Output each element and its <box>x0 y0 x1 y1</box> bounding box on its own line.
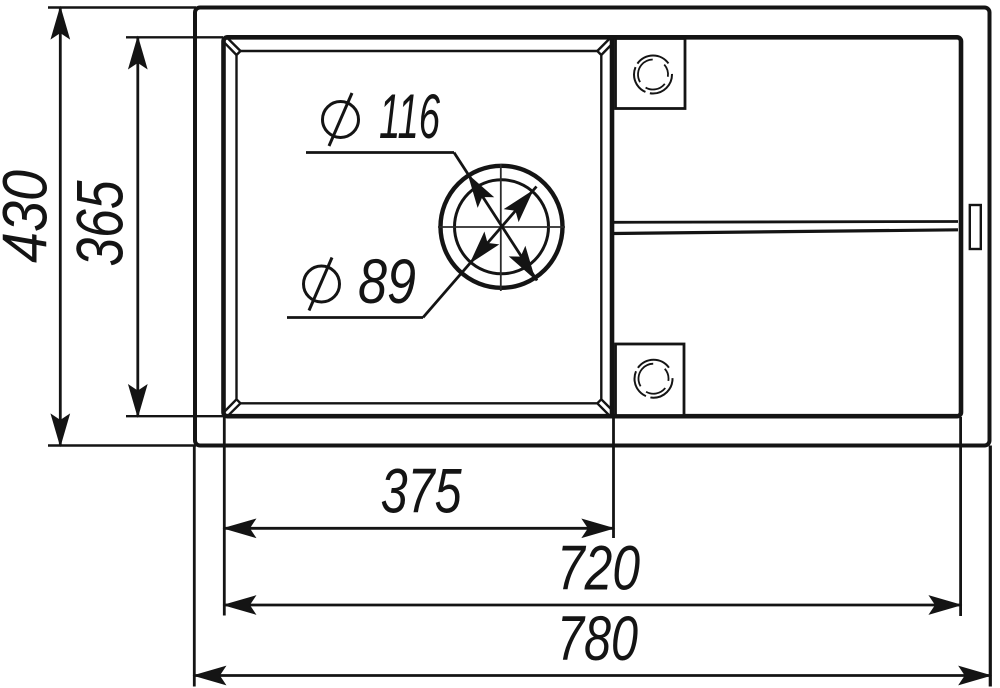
svg-text:89: 89 <box>358 247 416 317</box>
svg-text:720: 720 <box>557 534 640 604</box>
svg-text:430: 430 <box>0 170 61 263</box>
svg-text:116: 116 <box>379 82 441 152</box>
svg-text:365: 365 <box>63 180 137 266</box>
svg-text:780: 780 <box>557 604 638 674</box>
svg-text:375: 375 <box>381 457 463 527</box>
